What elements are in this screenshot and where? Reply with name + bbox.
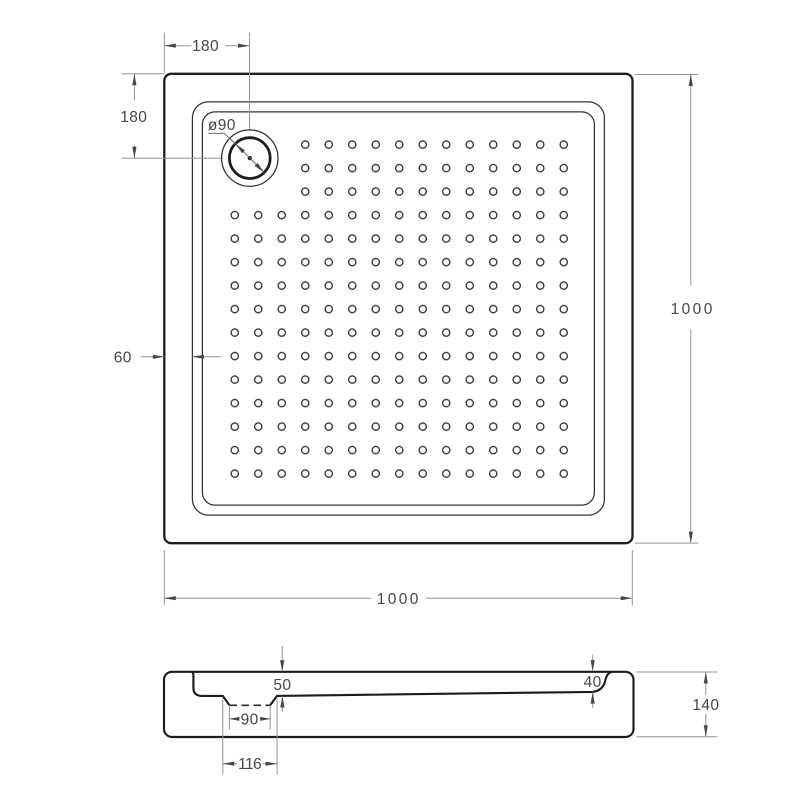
svg-text:116: 116	[238, 756, 261, 773]
svg-text:50: 50	[273, 677, 291, 694]
svg-text:1000: 1000	[671, 301, 715, 318]
svg-text:180: 180	[120, 109, 147, 126]
svg-text:ø90: ø90	[208, 117, 236, 134]
svg-text:90: 90	[241, 712, 259, 729]
svg-text:40: 40	[584, 674, 602, 691]
svg-text:60: 60	[114, 349, 132, 366]
svg-text:180: 180	[192, 38, 219, 55]
svg-text:1000: 1000	[377, 591, 421, 608]
svg-text:140: 140	[692, 697, 719, 714]
